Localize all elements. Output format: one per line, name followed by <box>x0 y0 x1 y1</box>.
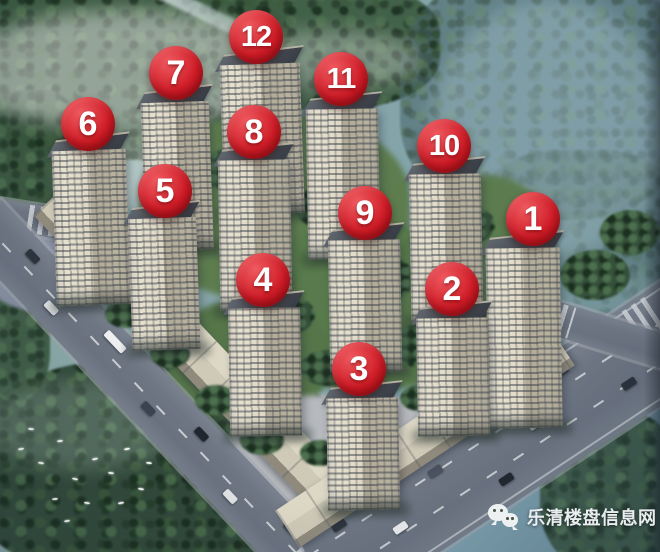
tower-facade <box>486 247 563 428</box>
tower-facade <box>228 307 302 436</box>
building-badge-1: 1 <box>506 192 560 246</box>
tower-facade <box>326 397 400 510</box>
building-badge-4: 4 <box>236 253 290 307</box>
building-badge-2: 2 <box>425 262 479 316</box>
building-badge-9: 9 <box>338 186 392 240</box>
tower-4 <box>228 293 302 436</box>
building-badge-5: 5 <box>138 164 192 218</box>
tower-5 <box>127 203 200 351</box>
building-badge-11: 11 <box>314 52 368 106</box>
tower-2 <box>416 303 490 436</box>
tower-facade <box>128 217 201 351</box>
building-badge-7: 7 <box>149 46 203 100</box>
building-badge-10: 10 <box>417 119 471 173</box>
complex-aerial-view: 123456789101112 乐清楼盘信息网 <box>0 0 660 552</box>
watermark-text: 乐清楼盘信息网 <box>527 504 657 530</box>
building-badge-8: 8 <box>227 105 281 159</box>
watermark: 乐清楼盘信息网 <box>488 503 657 531</box>
building-badge-3: 3 <box>332 342 386 396</box>
tower-3 <box>326 383 400 510</box>
tower-facade <box>416 317 490 436</box>
wechat-icon <box>488 503 520 531</box>
tower-6 <box>51 135 131 306</box>
building-badge-12: 12 <box>229 10 283 64</box>
tower-facade <box>52 149 131 306</box>
building-badge-6: 6 <box>61 97 115 151</box>
tower-1 <box>485 233 562 428</box>
